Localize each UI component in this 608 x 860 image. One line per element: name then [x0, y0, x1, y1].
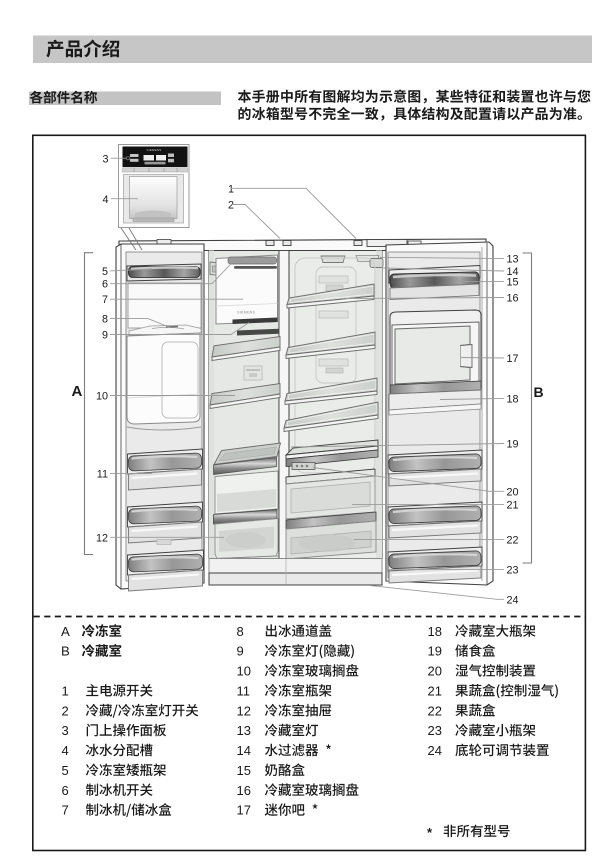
svg-text:23: 23 — [507, 565, 519, 577]
svg-text:22: 22 — [428, 703, 442, 718]
svg-text:SIEMENS: SIEMENS — [237, 311, 256, 315]
svg-text:11: 11 — [97, 469, 108, 481]
svg-text:9: 9 — [237, 644, 244, 659]
svg-text:21: 21 — [428, 683, 442, 698]
svg-text:10: 10 — [96, 391, 108, 403]
svg-text:15: 15 — [507, 277, 519, 289]
svg-text:15: 15 — [237, 763, 251, 778]
svg-text:A: A — [72, 383, 83, 400]
svg-text:3: 3 — [62, 723, 69, 738]
svg-text:13: 13 — [507, 254, 519, 266]
svg-text:18: 18 — [507, 393, 519, 405]
svg-text:5: 5 — [102, 266, 108, 278]
svg-text:5: 5 — [62, 763, 69, 778]
svg-text:1: 1 — [62, 683, 69, 698]
svg-text:4: 4 — [62, 743, 69, 758]
svg-text:18: 18 — [428, 624, 442, 639]
svg-text:12: 12 — [96, 532, 108, 544]
svg-text:19: 19 — [428, 644, 442, 659]
svg-text:2: 2 — [228, 200, 234, 212]
svg-text:4: 4 — [102, 194, 108, 206]
svg-text:24: 24 — [507, 594, 519, 606]
svg-text:7: 7 — [62, 803, 69, 818]
svg-text:9: 9 — [102, 330, 108, 342]
svg-text:17: 17 — [237, 803, 251, 818]
svg-text:B: B — [534, 384, 544, 400]
svg-text:8: 8 — [102, 314, 108, 326]
svg-text:10: 10 — [237, 664, 251, 679]
svg-text:13: 13 — [237, 723, 251, 738]
svg-text:6: 6 — [62, 783, 69, 798]
svg-text:24: 24 — [428, 743, 442, 758]
svg-text:3: 3 — [102, 154, 108, 166]
svg-text:12: 12 — [237, 703, 251, 718]
svg-text:SIEMENS: SIEMENS — [147, 148, 162, 152]
svg-text:B: B — [61, 644, 70, 659]
svg-text:8: 8 — [237, 624, 244, 639]
svg-text:21: 21 — [507, 500, 519, 512]
svg-text:16: 16 — [507, 293, 519, 305]
svg-text:1: 1 — [228, 183, 234, 195]
svg-text:7: 7 — [102, 294, 108, 306]
svg-text:16: 16 — [237, 783, 251, 798]
svg-text:20: 20 — [428, 664, 442, 679]
svg-text:6: 6 — [102, 279, 108, 291]
svg-text:2: 2 — [62, 703, 69, 718]
svg-text:19: 19 — [507, 439, 519, 451]
svg-text:17: 17 — [507, 353, 519, 365]
svg-text:22: 22 — [507, 535, 519, 547]
svg-text:20: 20 — [507, 486, 519, 498]
svg-text:23: 23 — [428, 723, 442, 738]
svg-text:14: 14 — [237, 743, 251, 758]
svg-text:11: 11 — [237, 683, 251, 698]
svg-text:A: A — [61, 624, 70, 639]
